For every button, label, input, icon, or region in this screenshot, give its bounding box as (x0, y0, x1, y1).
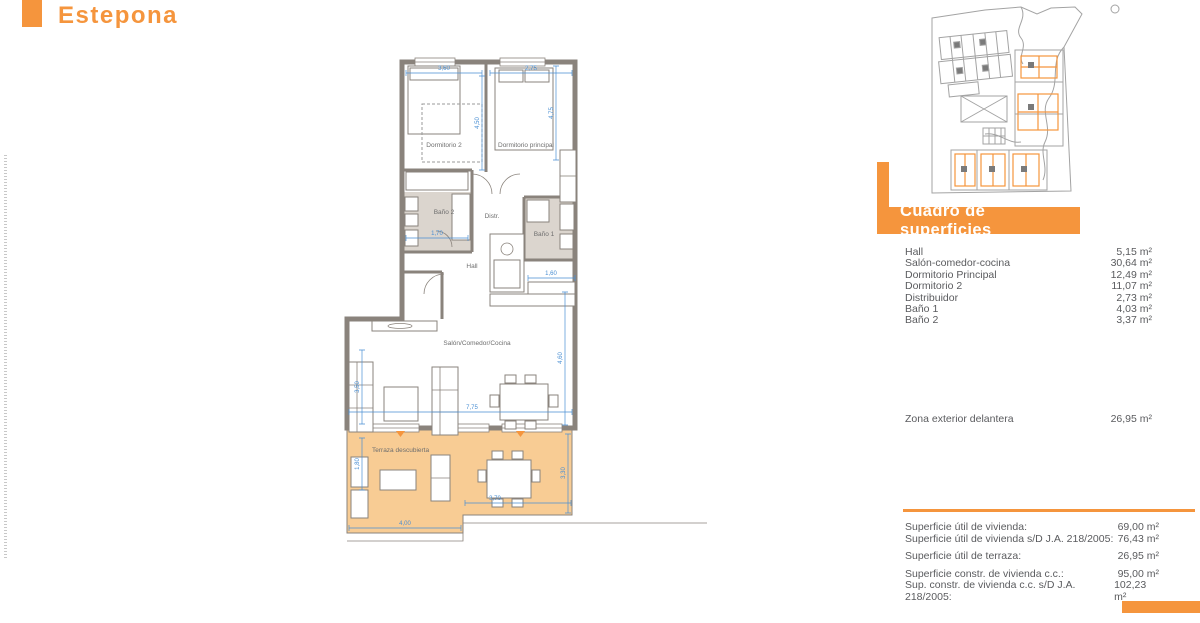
summary-row: Superficie útil de terraza: 26,95 m² (905, 551, 1159, 563)
table-row: Dormitorio 2 11,07 m² (905, 281, 1152, 292)
room-label-distribuidor: Distr. (485, 213, 500, 220)
dim-label-terraza-left-depth: 1,80 (355, 458, 361, 470)
exterior-zone-row: Zona exterior delantera 26,95 m² (905, 414, 1152, 425)
row-value: 102,23 m² (1114, 580, 1159, 603)
summary-block: Superficie útil de vivienda: 69,00 m² Su… (905, 522, 1159, 603)
row-value: 76,43 m² (1118, 534, 1159, 546)
dim-label-salon-width: 7,75 (466, 405, 478, 411)
table-row: Baño 2 3,37 m² (905, 315, 1152, 326)
surface-table: Hall 5,15 m² Salón-comedor-cocina 30,64 … (905, 247, 1152, 327)
row-value: 11,07 m² (1111, 281, 1152, 292)
room-label-dormitorio-2: Dormitorio 2 (426, 142, 462, 149)
dim-label-dorm2-width: 3,60 (438, 66, 450, 72)
table-row: Baño 1 4,03 m² (905, 304, 1152, 315)
dim-label-dormp-depth: 4,75 (549, 107, 555, 119)
row-label: Sup. constr. de vivienda c.c. s/D J.A. 2… (905, 580, 1114, 603)
row-label: Baño 2 (905, 315, 938, 326)
dim-label-cocina-width: 1,60 (545, 271, 557, 277)
plan-sheet: Estepona (0, 0, 1200, 623)
row-value: 69,00 m² (1118, 522, 1159, 534)
summary-row: Superficie útil de vivienda: 69,00 m² (905, 522, 1159, 534)
page-title: Estepona (58, 2, 178, 30)
row-value: 26,95 m² (1118, 551, 1159, 563)
room-label-terraza: Terraza descubierta (372, 447, 429, 454)
dim-label-salon-left-depth: 3,50 (355, 381, 361, 393)
room-label-hall: Hall (466, 263, 478, 270)
site-building-northwest (936, 30, 1014, 97)
row-value: 26,95 m² (1111, 414, 1152, 425)
table-row: Distribuidor 2,73 m² (905, 293, 1152, 304)
dim-label-terraza-right-depth: 3,30 (561, 467, 567, 479)
dim-label-dormp-width: 2,75 (525, 66, 537, 72)
site-key-plan (925, 4, 1197, 196)
row-label: Superficie útil de vivienda: (905, 522, 1027, 534)
row-value: 3,37 m² (1116, 315, 1152, 326)
surface-table-title: Cuadro de superficies (877, 207, 1080, 234)
brand-accent-block (22, 0, 42, 27)
row-label: Superficie útil de vivienda s/D J.A. 218… (905, 534, 1113, 546)
summary-divider-bar (903, 509, 1195, 512)
site-parking-grid (983, 128, 1005, 144)
room-label-bano-1: Baño 1 (534, 231, 555, 238)
site-pool (961, 96, 1007, 122)
table-accent-bar (877, 162, 889, 210)
dim-label-terraza-left-width: 4,00 (399, 521, 411, 527)
room-label-bano-2: Baño 2 (434, 209, 455, 216)
room-label-dormitorio-principal: Dormitorio principal (498, 142, 555, 149)
summary-row: Sup. constr. de vivienda c.c. s/D J.A. 2… (905, 580, 1159, 603)
dim-label-bano2-width: 1,70 (431, 231, 443, 237)
dim-label-terraza-right-width: 3,70 (489, 496, 501, 502)
row-label: Superficie útil de terraza: (905, 551, 1021, 563)
summary-row: Superficie útil de vivienda s/D J.A. 218… (905, 534, 1159, 546)
footer-accent-bar (1122, 601, 1200, 613)
vertical-fine-print (4, 155, 7, 560)
dim-label-dorm2-depth: 4,50 (475, 117, 481, 129)
room-label-salon: Salón/Comedor/Cocina (443, 340, 511, 347)
dim-label-salon-right-depth: 4,60 (558, 352, 564, 364)
floor-plan-drawing: 3,60 2,75 4,50 4,75 1,70 1,60 3,50 7,75 … (332, 42, 712, 557)
row-label: Zona exterior delantera (905, 414, 1014, 425)
site-building-south (951, 150, 1047, 190)
row-label: Dormitorio 2 (905, 281, 962, 292)
